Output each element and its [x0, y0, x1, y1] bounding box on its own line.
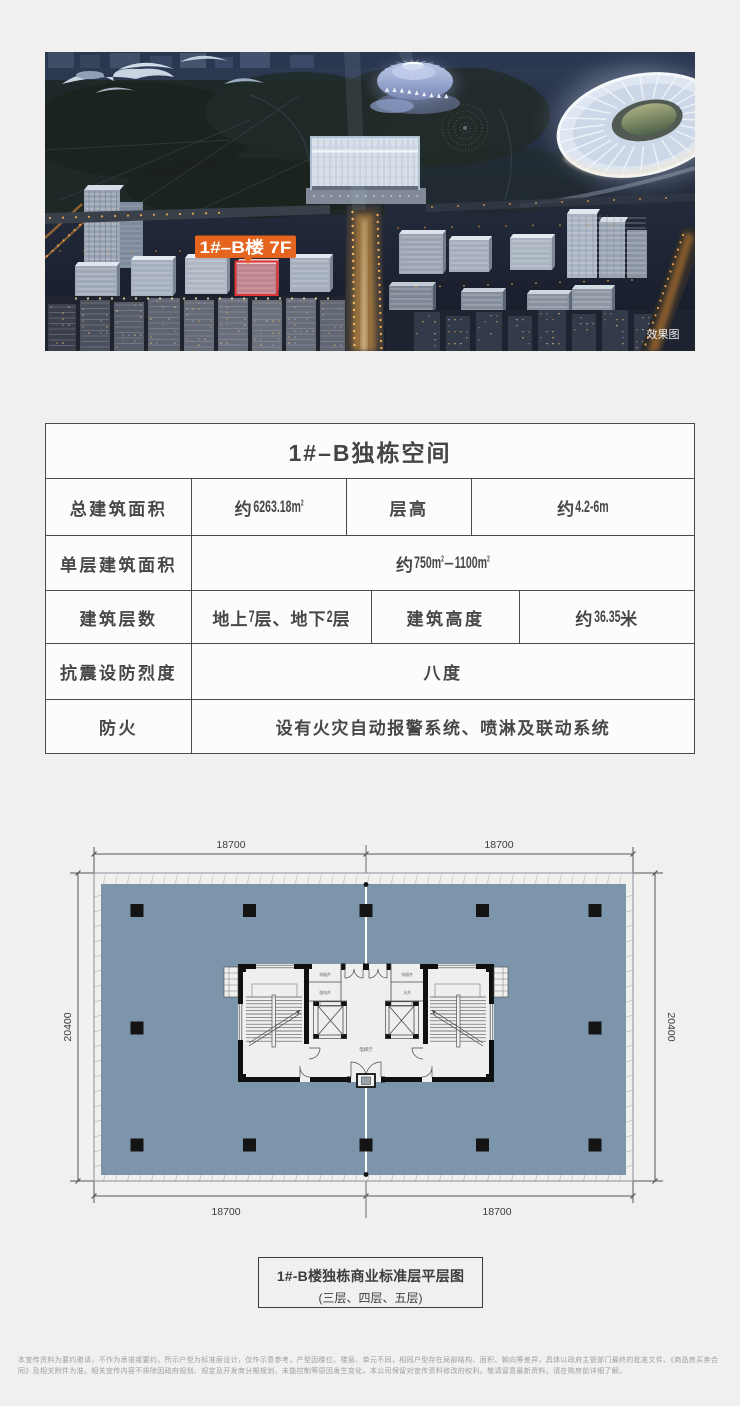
svg-text:水井: 水井 [403, 990, 411, 995]
svg-text:18700: 18700 [482, 1206, 511, 1218]
svg-text:18700: 18700 [211, 1206, 240, 1218]
svg-text:排烟井: 排烟井 [401, 972, 413, 977]
svg-text:排烟井: 排烟井 [319, 972, 331, 977]
svg-text:电梯厅: 电梯厅 [359, 1046, 373, 1053]
svg-text:效果图: 效果图 [647, 327, 680, 341]
svg-text:20400: 20400 [665, 1012, 677, 1041]
svg-text:1#–B楼 7F: 1#–B楼 7F [200, 237, 292, 257]
svg-text:18700: 18700 [484, 839, 513, 851]
svg-text:20400: 20400 [62, 1012, 74, 1041]
svg-text:18700: 18700 [216, 839, 245, 851]
svg-text:强电井: 强电井 [319, 990, 331, 995]
